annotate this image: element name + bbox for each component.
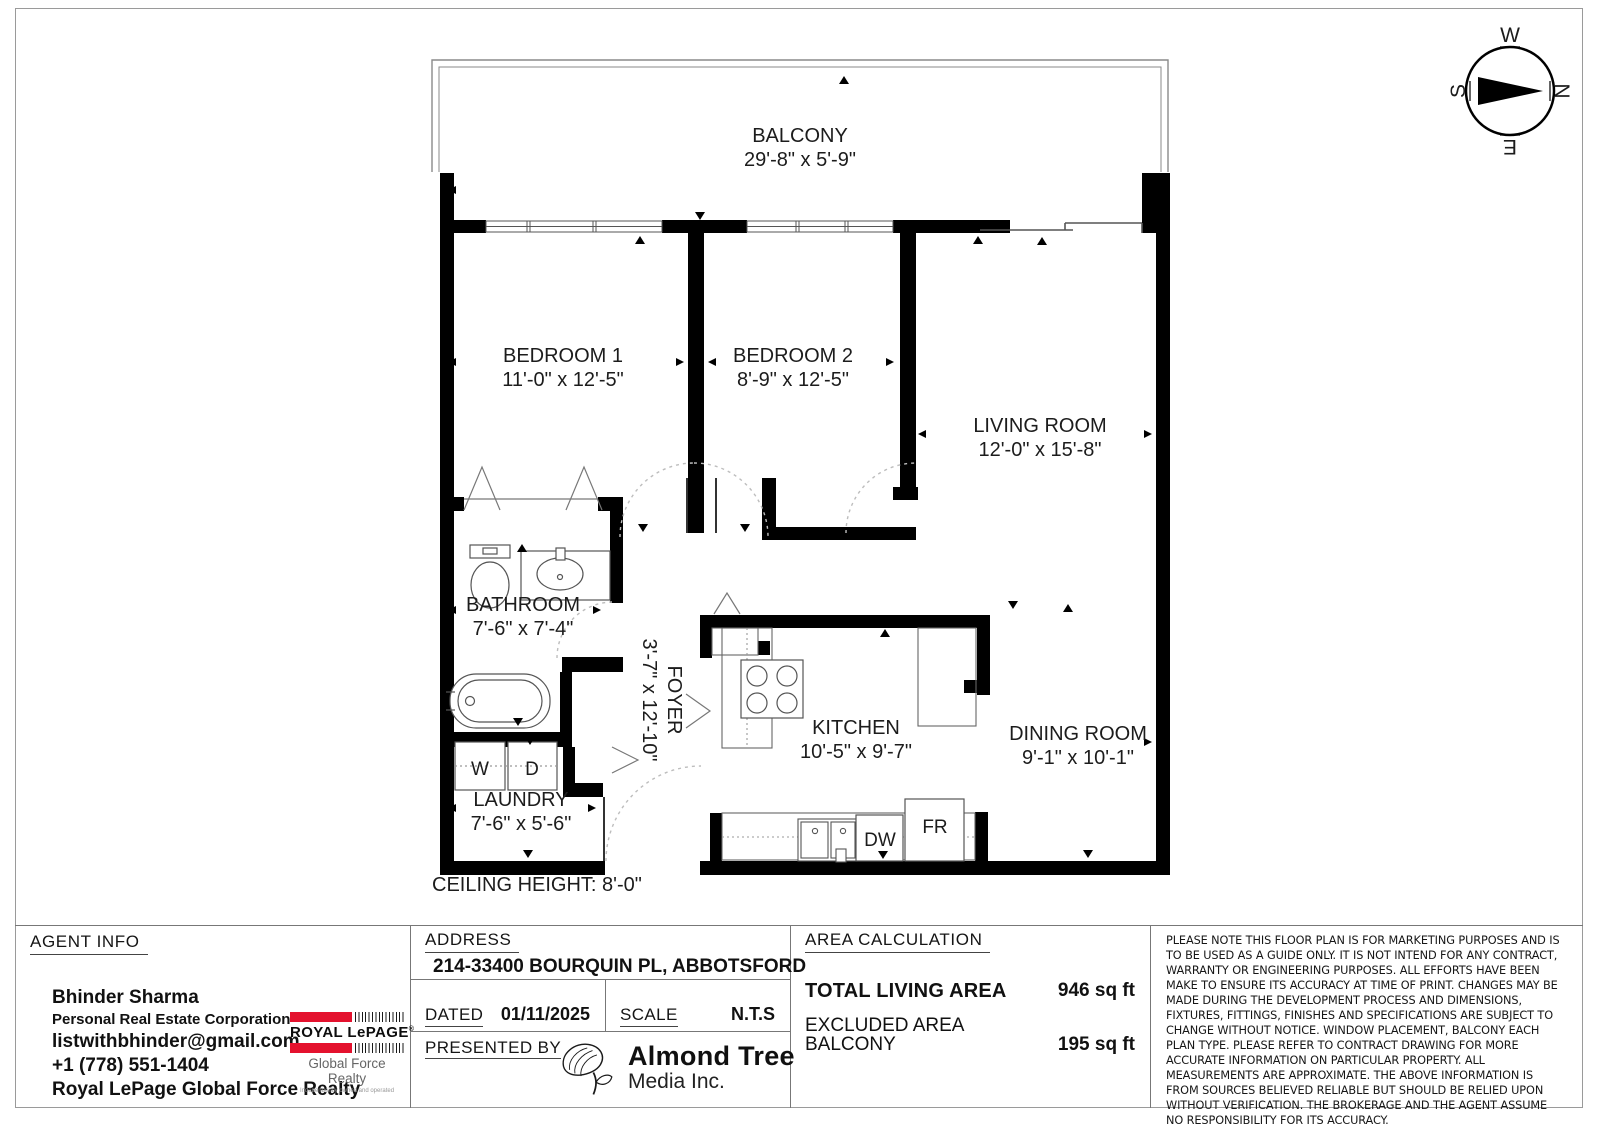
room-label-kitchen-dims: 10'-5" x 9'-7"	[800, 741, 912, 763]
logo-hatch-top	[355, 1012, 404, 1022]
balcony-area-row: BALCONY 195 sq ft	[805, 1034, 1135, 1056]
logo-red-bar-bottom	[290, 1043, 352, 1053]
disclaimer-text: PLEASE NOTE THIS FLOOR PLAN IS FOR MARKE…	[1166, 933, 1566, 1128]
balcony-area-value: 195 sq ft	[1058, 1034, 1135, 1056]
room-label-balcony-name: BALCONY	[752, 125, 848, 147]
dated-row: DATED 01/11/2025	[425, 1004, 590, 1027]
panel-top-line	[15, 925, 1583, 926]
stove-icon	[741, 660, 803, 718]
agent-info-title: AGENT INFO	[30, 932, 148, 955]
presented-by-label: PRESENTED BY	[425, 1038, 561, 1059]
presented-by: PRESENTED BY	[425, 1038, 561, 1058]
room-label-bathroom-name: BATHROOM	[466, 594, 580, 616]
dishwasher-label: DW	[864, 830, 896, 851]
kitchen-sink-icon	[798, 819, 858, 862]
room-label-bedroom2-dims: 8'-9" x 12'-5"	[737, 369, 849, 391]
balcony-area-label: BALCONY	[805, 1034, 896, 1056]
total-area-value: 946 sq ft	[1058, 980, 1135, 1003]
scale-row: SCALE N.T.S	[620, 1004, 775, 1027]
room-label-laundry-dims: 7'-6" x 5'-6"	[471, 813, 572, 835]
logo-red-bar-top	[290, 1012, 352, 1022]
room-label-balcony-dims: 29'-8" x 5'-9"	[744, 149, 856, 171]
royal-lepage-logo: ROYAL LePAGE® Global Force Realty Indepe…	[290, 1010, 404, 1094]
area-section: AREA CALCULATION	[805, 930, 990, 953]
almond-tree-logo: Almond Tree Media Inc.	[558, 1040, 795, 1098]
compass-north: N	[1550, 83, 1573, 98]
total-area-label: TOTAL LIVING AREA	[805, 980, 1007, 1003]
compass-west: W	[1500, 24, 1520, 47]
room-label-kitchen-name: KITCHEN	[812, 717, 900, 739]
royal-lepage-wordmark: ROYAL LePAGE®	[290, 1024, 404, 1041]
bathtub-icon	[446, 674, 550, 728]
agent-name: Bhinder Sharma	[52, 988, 360, 1007]
media-text: Almond Tree Media Inc.	[628, 1043, 795, 1094]
address-row-line-2	[410, 1031, 790, 1032]
media-line1: Almond Tree	[628, 1043, 795, 1070]
brand-reg-mark: ®	[409, 1026, 415, 1033]
room-label-living-dims: 12'-0" x 15'-8"	[978, 439, 1101, 461]
fridge-label: FR	[922, 817, 947, 838]
total-area-row: TOTAL LIVING AREA 946 sq ft	[805, 980, 1135, 1003]
room-label-bedroom1-dims: 11'-0" x 12'-5"	[502, 369, 624, 391]
address-section: ADDRESS	[425, 930, 519, 953]
compass-icon: W N E S	[1447, 24, 1573, 158]
panel-divider-1	[410, 925, 411, 1108]
address-title: ADDRESS	[425, 930, 519, 953]
dryer-label: D	[525, 759, 539, 780]
room-label-foyer-dims: 3'-7" x 12'-10"	[638, 638, 660, 761]
compass-east: E	[1503, 135, 1517, 158]
room-label-bedroom1-name: BEDROOM 1	[503, 345, 623, 367]
scale-value: N.T.S	[731, 1004, 775, 1025]
compass-south: S	[1447, 84, 1470, 98]
brand-tagline: Independently owned and operated	[290, 1088, 404, 1094]
room-label-bathroom-dims: 7'-6" x 7'-4"	[473, 618, 574, 640]
bathroom-sink-icon	[521, 548, 610, 600]
brand-subtitle: Global Force Realty	[290, 1056, 404, 1086]
area-title: AREA CALCULATION	[805, 930, 990, 953]
scale-label: SCALE	[620, 1005, 678, 1027]
almond-icon	[558, 1040, 620, 1098]
address-value: 214-33400 BOURQUIN PL, ABBOTSFORD	[433, 956, 806, 978]
room-label-living-name: LIVING ROOM	[973, 415, 1106, 437]
panel-divider-3	[1150, 925, 1151, 1108]
dated-label: DATED	[425, 1005, 483, 1027]
room-label-bedroom2-name: BEDROOM 2	[733, 345, 853, 367]
dated-scale-divider	[605, 979, 606, 1031]
logo-hatch-bottom	[355, 1043, 404, 1053]
ceiling-height-note: CEILING HEIGHT: 8'-0"	[432, 874, 642, 896]
agent-info-section: AGENT INFO	[30, 932, 148, 955]
room-label-dining-name: DINING ROOM	[1009, 723, 1147, 745]
room-label-foyer-name: FOYER	[663, 666, 685, 735]
room-label-dining-dims: 9'-1" x 10'-1"	[1022, 747, 1134, 769]
dated-value: 01/11/2025	[501, 1004, 590, 1025]
media-line2: Media Inc.	[628, 1070, 795, 1094]
washer-label: W	[471, 759, 489, 780]
brand-name: ROYAL LePAGE	[290, 1024, 409, 1041]
excluded-area-label: EXCLUDED AREA	[805, 1015, 964, 1036]
room-label-laundry-name: LAUNDRY	[473, 789, 568, 811]
address-row-line-1	[410, 979, 790, 980]
